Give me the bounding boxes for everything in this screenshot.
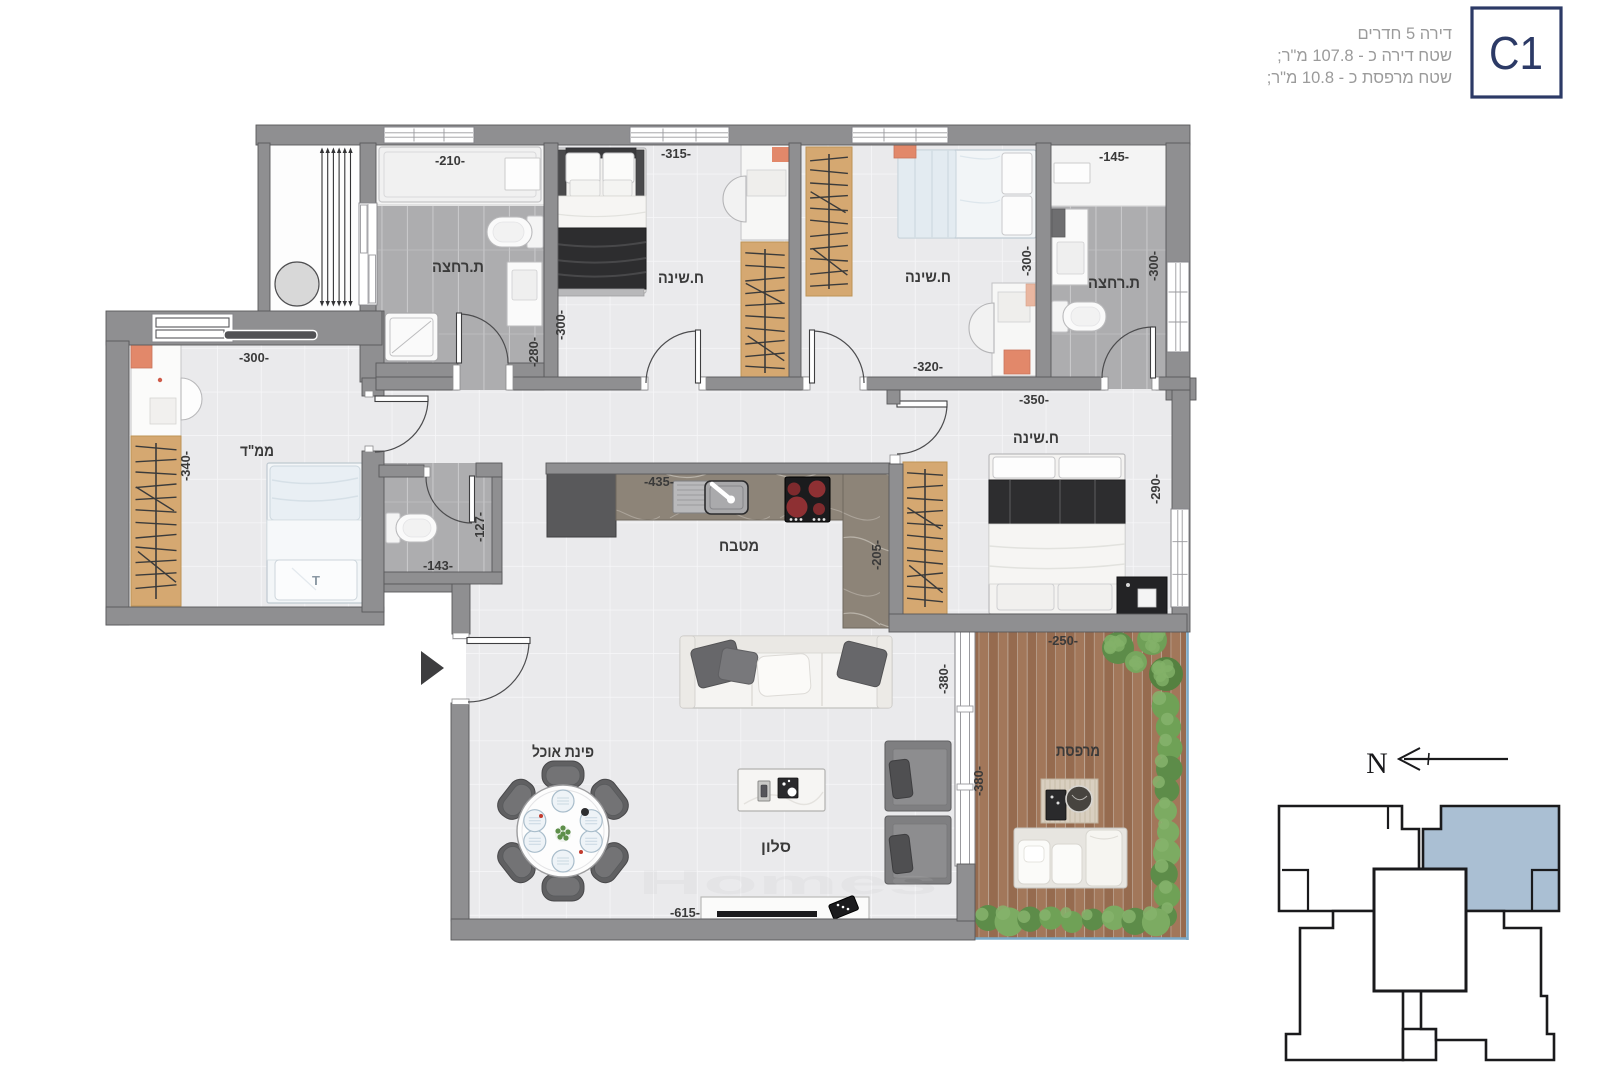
svg-text:-300-: -300- [1147, 251, 1161, 281]
svg-text:-315-: -315- [661, 147, 691, 161]
svg-text:-143-: -143- [423, 559, 453, 573]
svg-text:-350-: -350- [1019, 393, 1049, 407]
svg-text:פינת אוכל: פינת אוכל [532, 744, 594, 761]
svg-text:מרפסת: מרפסת [1056, 743, 1100, 760]
svg-text:-435-: -435- [644, 475, 674, 489]
svg-text:סלון: סלון [761, 839, 791, 856]
svg-text:-250-: -250- [1048, 634, 1078, 648]
svg-text:-615-: -615- [670, 906, 700, 920]
svg-text:ת.רחצה: ת.רחצה [1088, 275, 1140, 292]
svg-text:-210-: -210- [435, 154, 465, 168]
svg-text:-145-: -145- [1099, 150, 1129, 164]
svg-text:Homes: Homes [638, 864, 938, 902]
svg-text:-340-: -340- [179, 451, 193, 481]
svg-text:N: N [1366, 747, 1388, 780]
svg-text:ח.שינה: ח.שינה [905, 269, 951, 286]
svg-text:-300-: -300- [554, 310, 568, 340]
svg-text:-320-: -320- [913, 360, 943, 374]
svg-text:דירה 5 חדרים: דירה 5 חדרים [1357, 25, 1452, 43]
svg-text:-300-: -300- [1020, 246, 1034, 276]
svg-text:ת.רחצה: ת.רחצה [432, 259, 484, 276]
svg-text:ממ"ד: ממ"ד [240, 443, 274, 460]
svg-text:ח.שינה: ח.שינה [1013, 430, 1059, 447]
svg-text:שטח מרפסת כ - 10.8 מ"ר;: שטח מרפסת כ - 10.8 מ"ר; [1267, 69, 1452, 87]
svg-text:-127-: -127- [473, 512, 487, 542]
svg-text:מטבח: מטבח [719, 538, 759, 555]
svg-text:-280-: -280- [527, 337, 541, 367]
svg-text:-205-: -205- [870, 540, 884, 570]
svg-text:שטח דירה כ - 107.8 מ"ר;: שטח דירה כ - 107.8 מ"ר; [1277, 47, 1452, 65]
svg-text:C1: C1 [1489, 27, 1543, 79]
svg-text:ח.שינה: ח.שינה [658, 270, 704, 287]
svg-text:-290-: -290- [1149, 474, 1163, 504]
svg-text:-380-: -380- [972, 766, 986, 796]
svg-text:T: T [312, 573, 320, 588]
svg-text:-380-: -380- [937, 664, 951, 694]
svg-text:-300-: -300- [239, 351, 269, 365]
